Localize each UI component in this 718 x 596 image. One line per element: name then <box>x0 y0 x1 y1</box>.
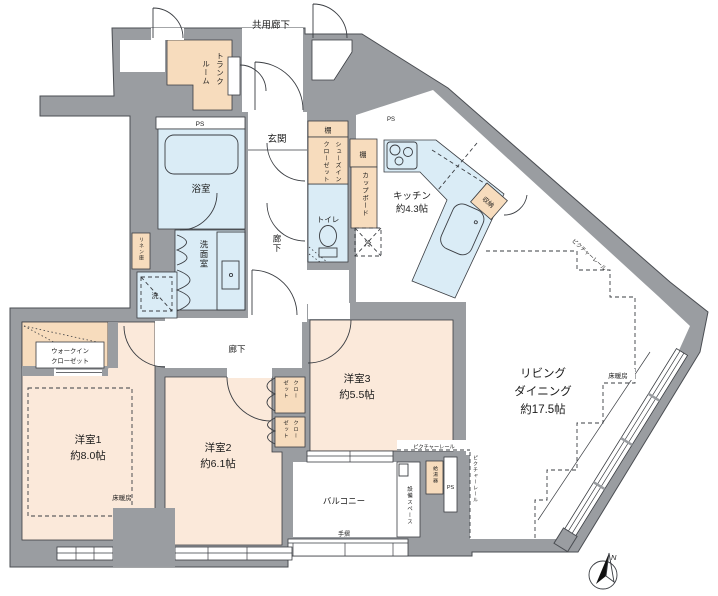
label-closet1-col2: ゼット <box>282 379 289 399</box>
washroom <box>175 230 245 310</box>
balcony <box>288 462 420 556</box>
label-shoes-closet-1: シューズイン <box>334 141 341 183</box>
label-trunk-room-2: ルーム <box>201 60 210 86</box>
room-bedroom3 <box>310 320 453 451</box>
label-hallway-vertical: 廊下 <box>272 233 282 253</box>
label-shoes-closet-2: クローゼット <box>322 141 329 183</box>
bathroom <box>158 129 245 229</box>
hallway-extension <box>303 270 349 304</box>
label-bedroom1-name: 洋室1 <box>75 433 102 446</box>
label-living-size: 約17.5帖 <box>520 402 565 416</box>
label-closet2-col1: クロー <box>292 420 299 439</box>
label-bedroom2-name: 洋室2 <box>205 441 232 454</box>
window-bedroom1 <box>57 547 113 560</box>
label-kitchen-size: 約4.3帖 <box>396 203 429 215</box>
closet-lower <box>275 417 305 447</box>
label-bathroom: 浴室 <box>191 183 210 195</box>
window-bedroom2 <box>175 547 292 560</box>
label-living-1: リビング <box>520 366 566 380</box>
label-closet2-col2: ゼット <box>282 419 289 439</box>
label-bedroom2-size: 約6.1帖 <box>200 457 236 470</box>
label-washer: 洗 <box>152 291 159 300</box>
hallway-horizontal <box>165 318 302 368</box>
balcony-handrail <box>288 539 408 556</box>
window-bedroom3-balcony <box>307 451 393 462</box>
label-compass-north: N <box>611 553 617 562</box>
label-common-corridor: 共用廊下 <box>252 19 290 31</box>
label-picture-rail-horizontal: ピクチャーレール <box>413 444 454 451</box>
label-bedroom3-size: 約5.5帖 <box>339 388 375 401</box>
label-water-heater: 給湯器 <box>432 465 437 484</box>
compass-icon: N <box>589 553 617 589</box>
shoes-in-closet <box>308 137 348 184</box>
label-bedroom1-size: 約8.0帖 <box>70 449 106 462</box>
label-shelf-upper: 棚 <box>325 126 332 135</box>
label-picture-rail-vertical: ピクチャーレール <box>472 455 478 503</box>
label-toilet: トイレ <box>317 215 340 224</box>
label-wic-1: ウォークイン <box>51 347 89 355</box>
floor-plan: 収納 <box>0 0 718 596</box>
label-handrail: 手摺 <box>338 530 350 538</box>
label-washroom: 洗面室 <box>199 239 209 268</box>
label-shelf-kitchen: 棚 <box>360 150 367 159</box>
label-ps-right: PS <box>447 485 455 491</box>
closet-upper <box>275 377 305 413</box>
label-linen: リネン庫 <box>138 237 144 261</box>
pillar <box>113 508 175 567</box>
label-floor-heating-bedroom1: 床暖房 <box>112 493 132 502</box>
floor-plan-page: 収納 <box>0 0 718 596</box>
label-kitchen-name: キッチン <box>393 191 431 202</box>
label-living-2: ダイニング <box>514 384 572 398</box>
label-wic-2: クローゼット <box>51 356 89 365</box>
label-trunk-room-1: トランク <box>216 52 225 86</box>
label-fridge: 冷 <box>365 239 372 248</box>
label-hallway-horizontal: 廊下 <box>228 344 246 354</box>
label-bedroom3-name: 洋室3 <box>344 372 371 385</box>
label-entrance: 玄関 <box>267 133 286 145</box>
label-ps-top: PS <box>196 121 205 128</box>
label-floor-heating-living: 床暖房 <box>608 371 628 380</box>
label-ps-kitchen: PS <box>387 117 395 123</box>
label-closet1-col1: クロー <box>292 380 299 399</box>
label-equipment-space: 設備スペース <box>406 485 413 525</box>
door-arc-porch <box>313 4 347 38</box>
label-balcony: バルコニー <box>323 496 365 506</box>
